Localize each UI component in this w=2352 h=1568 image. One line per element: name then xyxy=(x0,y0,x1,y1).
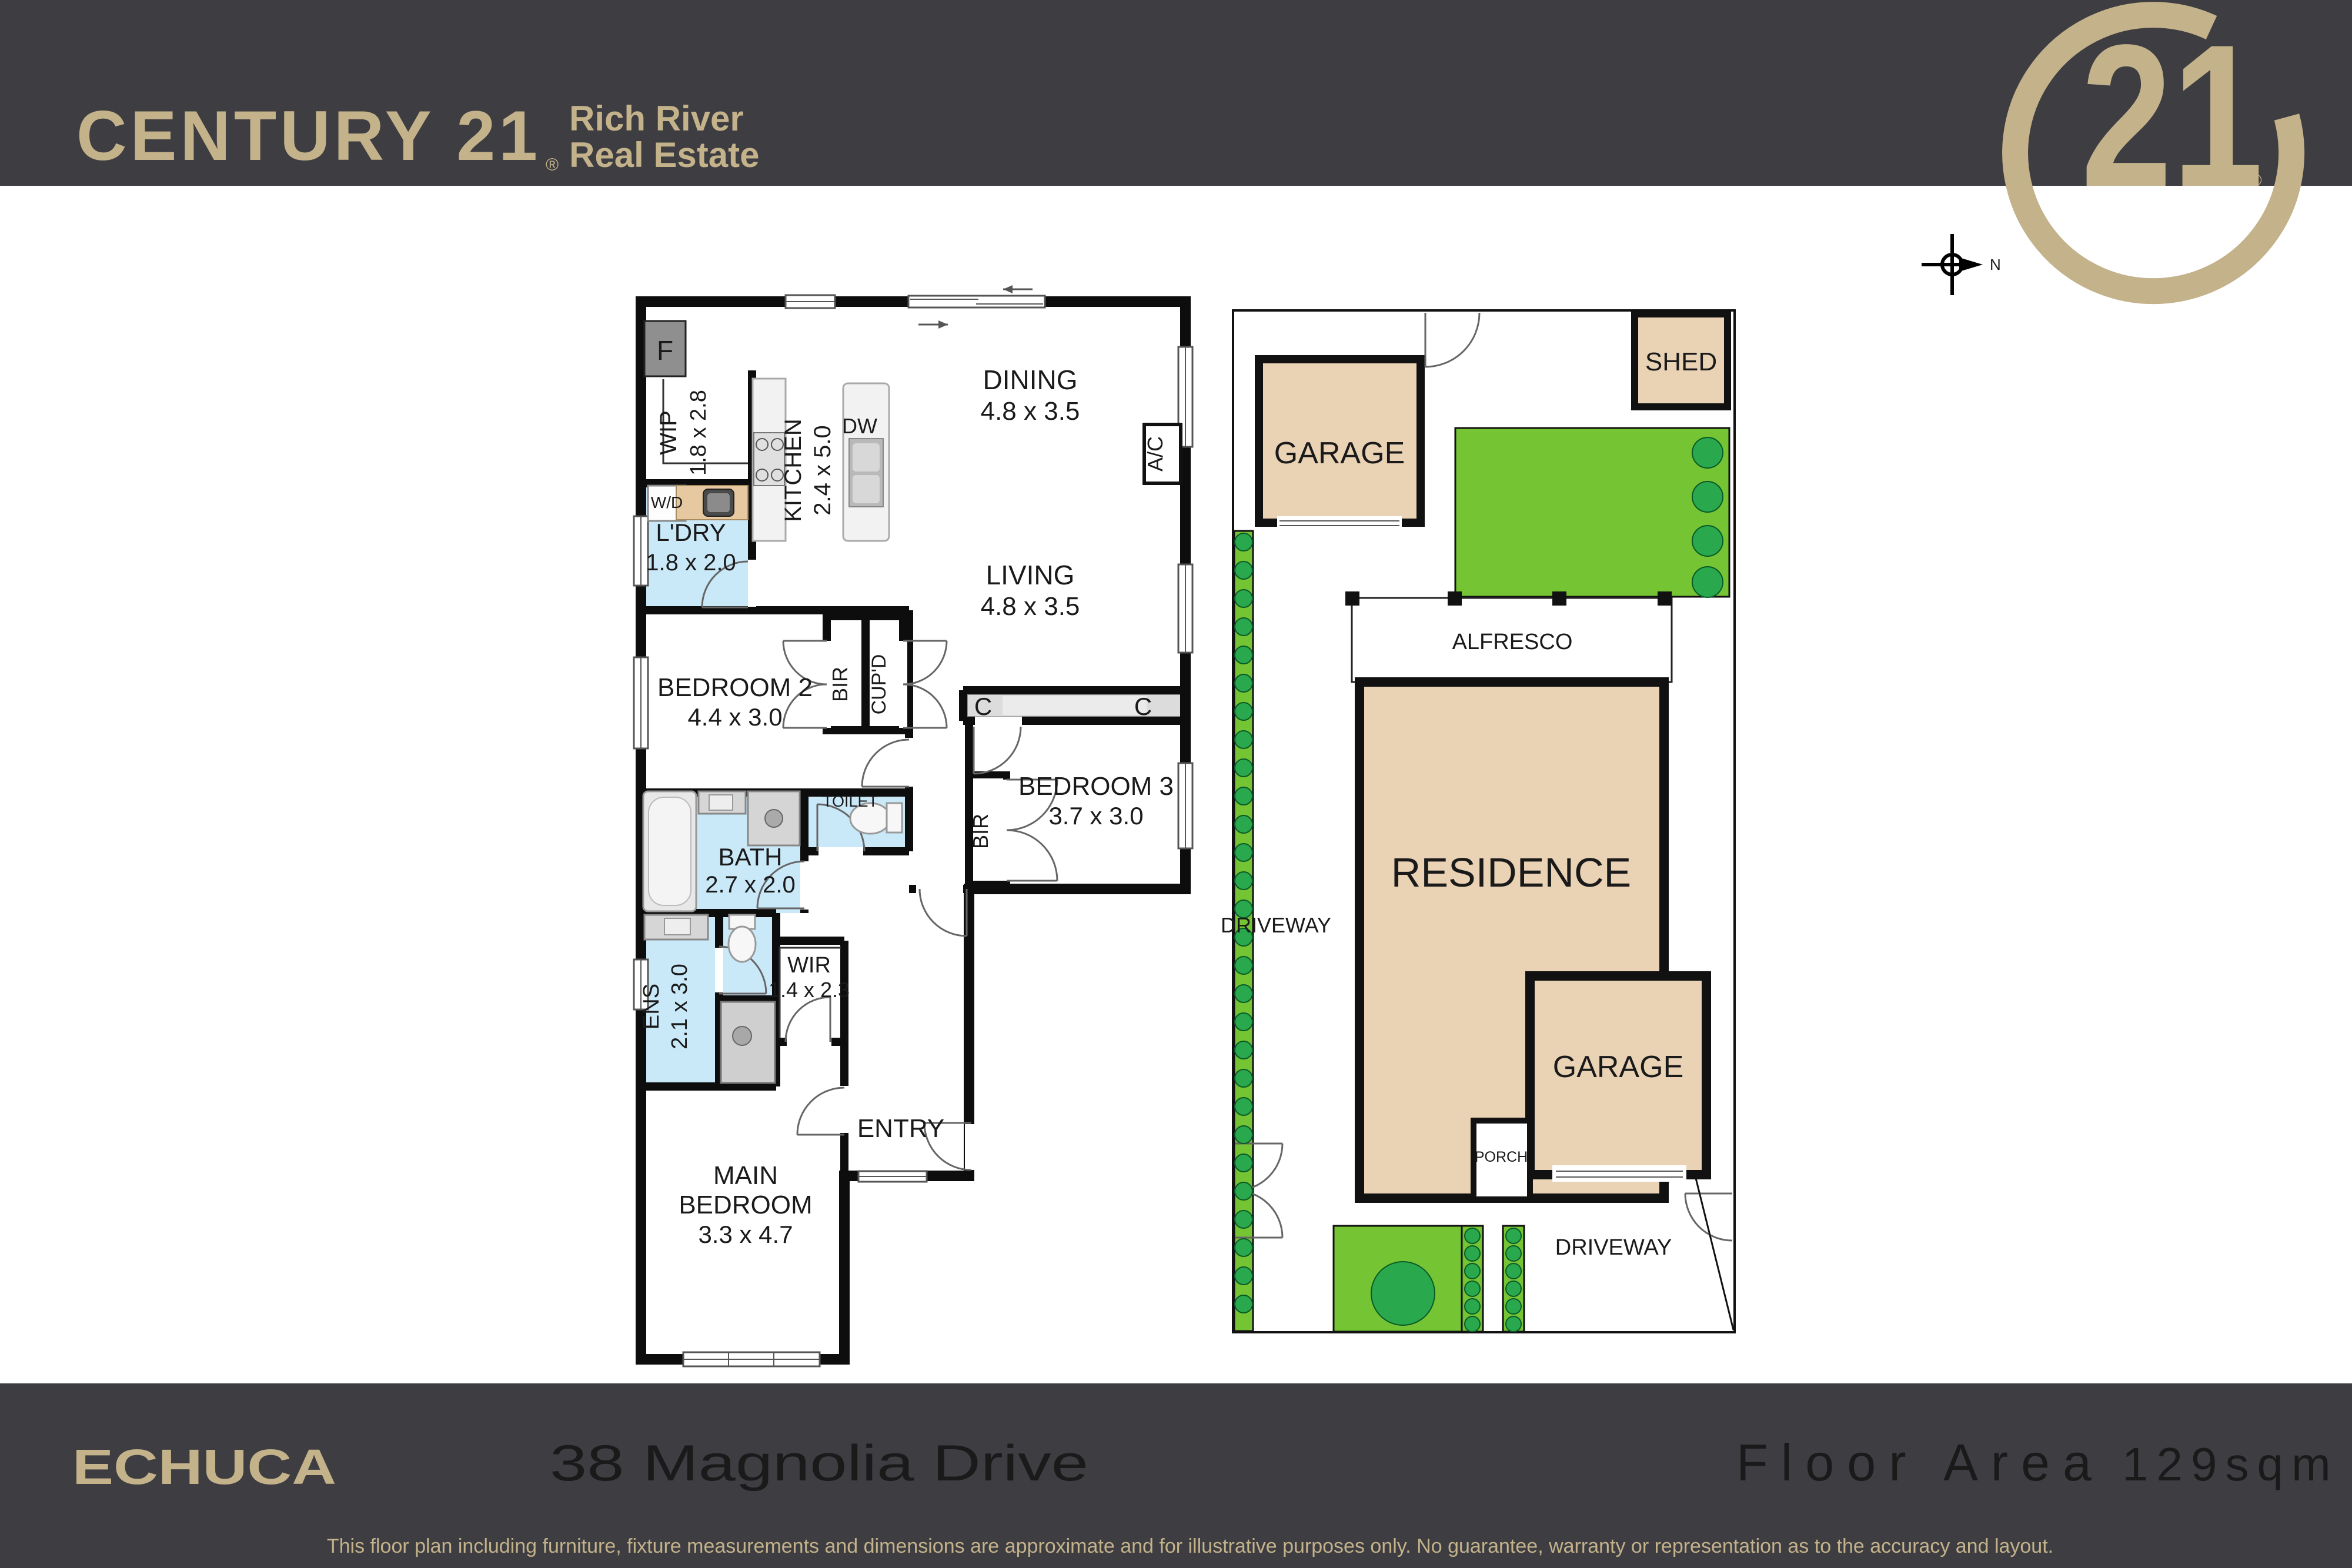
rear-garage-label: GARAGE xyxy=(1274,436,1405,470)
front-tree-icon xyxy=(1371,1262,1435,1325)
bush-icon xyxy=(1235,1267,1252,1285)
bush-icon xyxy=(1235,561,1252,579)
ensuite-shower-head-icon xyxy=(733,1027,751,1045)
rear-lawn xyxy=(1455,428,1729,597)
bush-icon xyxy=(1692,437,1723,468)
hall-cupboard-strip-inner xyxy=(1003,696,1147,715)
bush-icon xyxy=(1235,1211,1252,1228)
toilet-label: TOILET xyxy=(823,793,878,810)
bush-icon xyxy=(1235,1126,1252,1144)
disclaimer-text: This floor plan including furniture, fix… xyxy=(327,1535,2053,1557)
compass-icon: N xyxy=(1922,234,2001,295)
laundry-dims: 1.8 x 2.0 xyxy=(646,550,736,576)
bath-dims: 2.7 x 2.0 xyxy=(705,872,795,898)
bush-icon xyxy=(1465,1316,1480,1332)
bush-icon xyxy=(1235,618,1252,636)
bush-icon xyxy=(1465,1281,1480,1296)
ensuite-label: ENS xyxy=(639,984,664,1029)
bedroom3-label: BEDROOM 3 xyxy=(1018,772,1174,801)
bush-icon xyxy=(1235,787,1252,805)
siteplan-drawing: GARAGE SHED ALFRESCO RESIDENCE GARAGE PO… xyxy=(1221,310,1735,1332)
bedroom2-robe-label: BIR xyxy=(828,667,852,702)
laundry-label: L'DRY xyxy=(656,519,726,546)
dining-label: DINING xyxy=(983,365,1078,395)
dishwasher-label: DW xyxy=(842,414,877,438)
bush-icon xyxy=(1692,482,1723,512)
floorplan-page: CENTURY 21 ® Rich River Real Estate 21 ®… xyxy=(0,0,2352,1568)
wir-dims: 1.4 x 2.3 xyxy=(769,978,850,1002)
fridge-label: F xyxy=(657,335,673,366)
bath-shower-head-icon xyxy=(765,810,783,827)
property-address: 38 Magnolia Drive xyxy=(550,1435,1088,1492)
compass-north-label: N xyxy=(1990,256,2001,273)
front-driveway-label: DRIVEWAY xyxy=(1555,1235,1672,1260)
air-conditioner-label: A/C xyxy=(1143,436,1167,472)
bush-icon xyxy=(1235,872,1252,890)
bush-icon xyxy=(1235,1098,1252,1115)
floor-area-label: Floor Area xyxy=(1736,1433,2104,1492)
bush-icon xyxy=(1235,646,1252,664)
bush-icon xyxy=(1506,1281,1521,1296)
bush-icon xyxy=(1506,1263,1521,1279)
entry-label: ENTRY xyxy=(857,1114,944,1143)
ensuite-toilet-pan xyxy=(729,927,756,962)
linen-cupboard-label-left: C xyxy=(974,693,992,720)
bush-icon xyxy=(1506,1246,1521,1261)
wip-dims: 1.8 x 2.8 xyxy=(686,390,711,476)
bush-icon xyxy=(1692,526,1723,556)
office-name-line2: Real Estate xyxy=(569,135,760,175)
main-bedroom-dims: 3.3 x 4.7 xyxy=(698,1221,793,1248)
bathtub-inner xyxy=(649,797,691,905)
seal-registered-mark: ® xyxy=(2250,171,2262,189)
floor-area: Floor Area129sqm xyxy=(1736,1433,2339,1492)
linen-cupboard-label-right: C xyxy=(1134,693,1152,720)
bush-icon xyxy=(1235,759,1252,777)
ensuite-dims: 2.1 x 3.0 xyxy=(667,964,692,1049)
footer-bar: ECHUCA 38 Magnolia Drive Floor Area129sq… xyxy=(0,1383,2352,1568)
bush-icon xyxy=(1235,1154,1252,1172)
bath-vanity-basin xyxy=(709,795,733,810)
hall-cupboard-label: CUP'D xyxy=(868,654,890,715)
bath-label: BATH xyxy=(719,843,783,871)
bush-icon xyxy=(1235,674,1252,692)
main-bedroom-label-line1: MAIN xyxy=(713,1161,778,1190)
bush-icon xyxy=(1235,731,1252,748)
shed-label: SHED xyxy=(1645,347,1717,376)
bush-icon xyxy=(1692,567,1723,597)
dining-dims: 4.8 x 3.5 xyxy=(981,397,1080,426)
sink-basin-2 xyxy=(853,475,880,503)
wir-label: WIR xyxy=(787,953,831,978)
bush-icon xyxy=(1235,985,1252,1002)
living-label: LIVING xyxy=(986,560,1075,590)
side-driveway-label: DRIVEWAY xyxy=(1221,913,1331,937)
bush-icon xyxy=(1235,1295,1252,1313)
wip-label: WIP xyxy=(656,410,681,455)
washer-dryer-label: W/D xyxy=(651,493,683,511)
header-bar: CENTURY 21 ® Rich River Real Estate xyxy=(0,0,2352,186)
bedroom2-label: BEDROOM 2 xyxy=(657,673,813,702)
bush-icon xyxy=(1235,703,1252,720)
kitchen-label: KITCHEN xyxy=(780,419,806,522)
seal-number: 21 xyxy=(2081,3,2263,229)
residence-label: RESIDENCE xyxy=(1391,850,1631,895)
bedroom3-robe-label: BIR xyxy=(968,814,993,849)
alfresco-label: ALFRESCO xyxy=(1452,630,1573,654)
bush-icon xyxy=(1465,1299,1480,1314)
kitchen-dims: 2.4 x 5.0 xyxy=(810,425,836,515)
bush-icon xyxy=(1506,1299,1521,1314)
office-name-line1: Rich River xyxy=(569,99,744,138)
bush-icon xyxy=(1465,1228,1480,1243)
suburb-label: ECHUCA xyxy=(72,1439,336,1495)
bush-icon xyxy=(1235,957,1252,974)
bush-icon xyxy=(1235,1239,1252,1256)
bush-icon xyxy=(1465,1246,1480,1261)
compass-north-arrow xyxy=(1959,258,1983,272)
bush-icon xyxy=(1235,1013,1252,1031)
sink-basin-1 xyxy=(853,443,880,472)
main-bedroom-label-line2: BEDROOM xyxy=(679,1191,812,1219)
living-dims: 4.8 x 3.5 xyxy=(981,592,1080,621)
bush-icon xyxy=(1506,1228,1521,1243)
brand-wordmark: CENTURY 21 xyxy=(76,96,541,175)
bush-icon xyxy=(1506,1316,1521,1332)
bush-icon xyxy=(1465,1263,1480,1279)
bush-icon xyxy=(1235,533,1252,551)
porch-label: PORCH xyxy=(1475,1149,1528,1165)
toilet-cistern xyxy=(887,803,902,833)
bush-icon xyxy=(1235,1041,1252,1059)
laundry-tub-basin xyxy=(707,493,730,512)
bedroom3-dims: 3.7 x 3.0 xyxy=(1048,802,1143,830)
bush-icon xyxy=(1235,590,1252,607)
floor-area-value: 129sqm xyxy=(2122,1438,2339,1490)
bush-icon xyxy=(1235,844,1252,861)
ensuite-vanity-basin xyxy=(664,918,690,935)
bedroom2-dims: 4.4 x 3.0 xyxy=(687,703,782,731)
floorplan-canvas: CENTURY 21 ® Rich River Real Estate 21 ®… xyxy=(0,0,2352,1568)
bush-icon xyxy=(1235,815,1252,833)
bush-icon xyxy=(1235,1069,1252,1087)
front-garage-label: GARAGE xyxy=(1553,1050,1684,1084)
floorplan-drawing: F WIP 1.8 x 2.8 KITCHEN 2.4 x 5.0 DW W/D… xyxy=(634,285,1192,1366)
bush-icon xyxy=(1235,1182,1252,1200)
brand-registered-mark: ® xyxy=(546,155,559,175)
